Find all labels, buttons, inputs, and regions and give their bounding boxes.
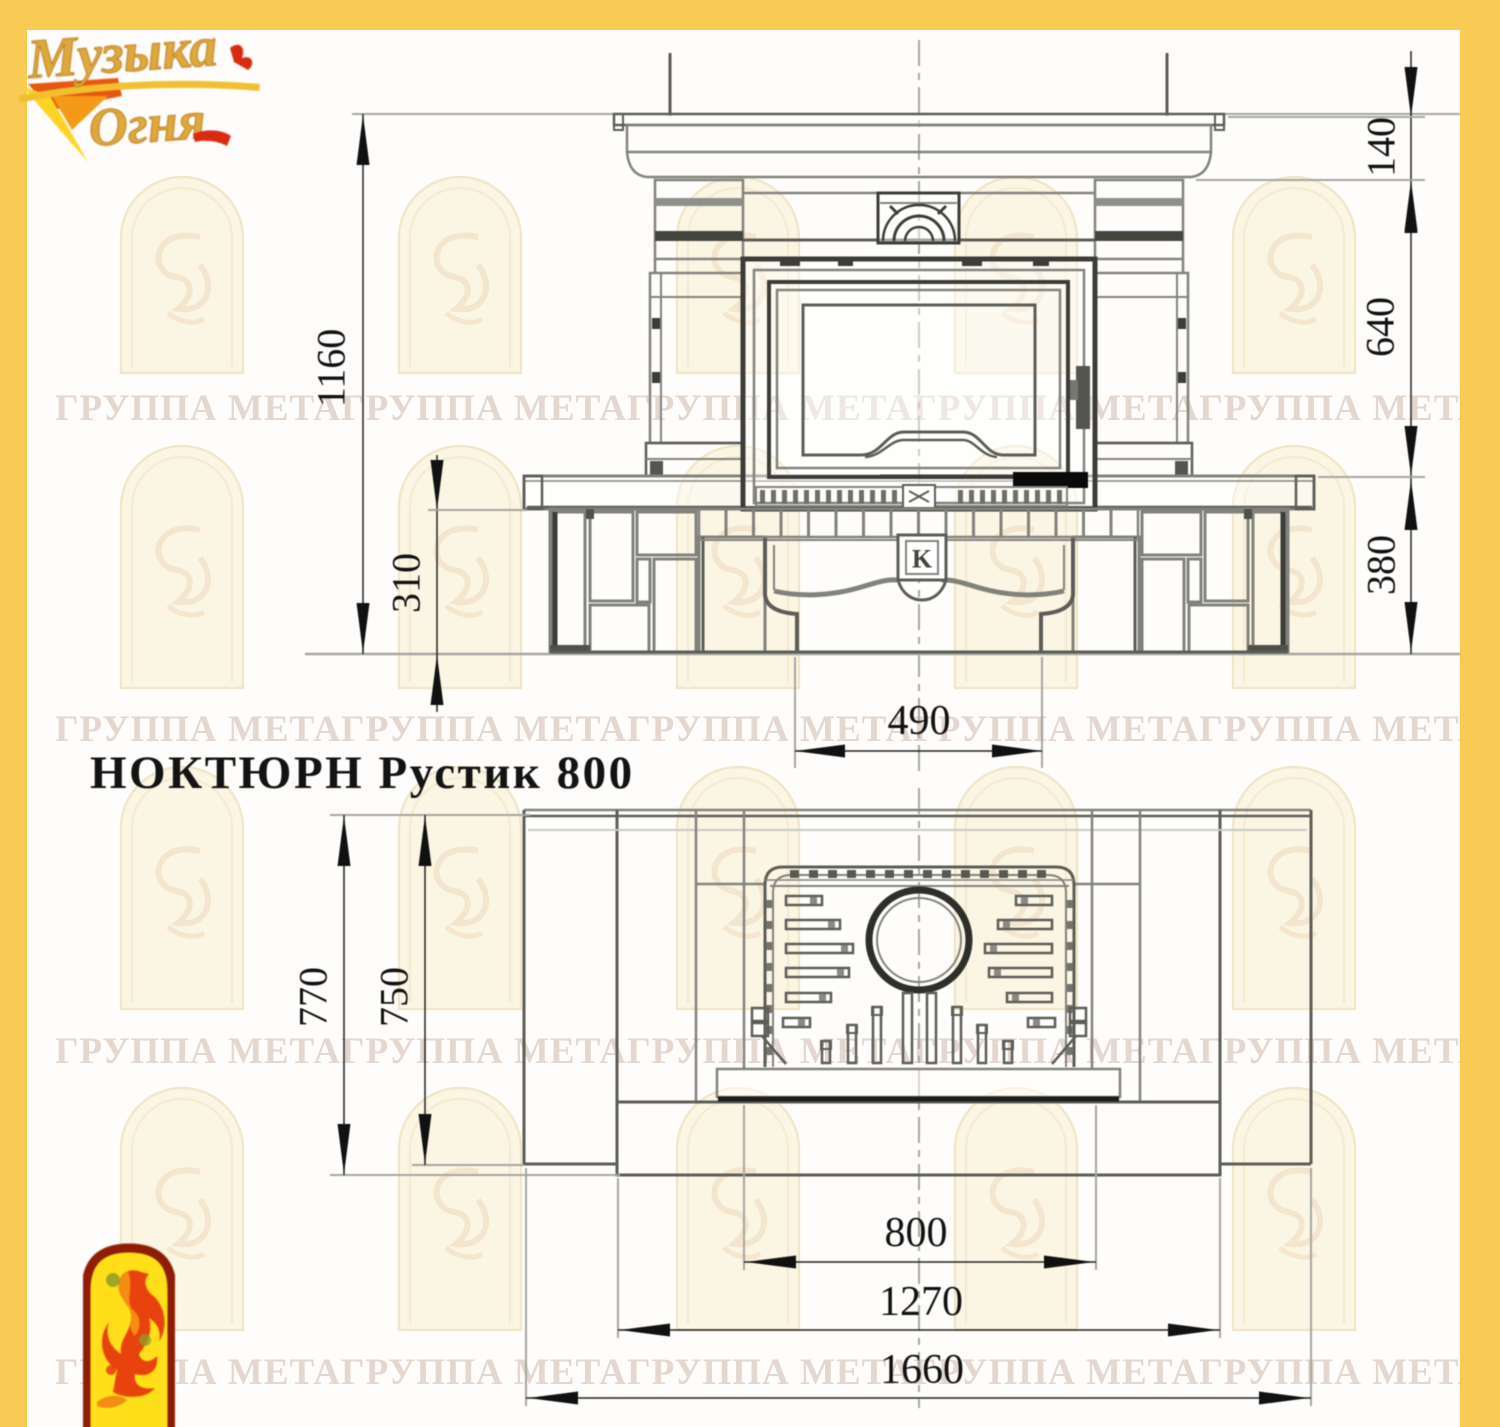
svg-text:1160: 1160 [309,329,354,408]
svg-text:750: 750 [372,967,417,1027]
svg-text:640: 640 [1358,297,1403,357]
svg-text:1270: 1270 [879,1279,963,1325]
svg-text:Музыка: Музыка [25,22,219,91]
svg-text:1660: 1660 [880,1347,964,1393]
svg-text:380: 380 [1359,535,1404,595]
svg-text:310: 310 [384,553,429,613]
svg-text:490: 490 [888,698,951,744]
svg-text:Огня: Огня [87,90,208,158]
svg-text:770: 770 [291,967,336,1027]
svg-text:800: 800 [885,1210,948,1256]
svg-text:K: K [912,545,933,574]
svg-text:140: 140 [1359,117,1404,177]
